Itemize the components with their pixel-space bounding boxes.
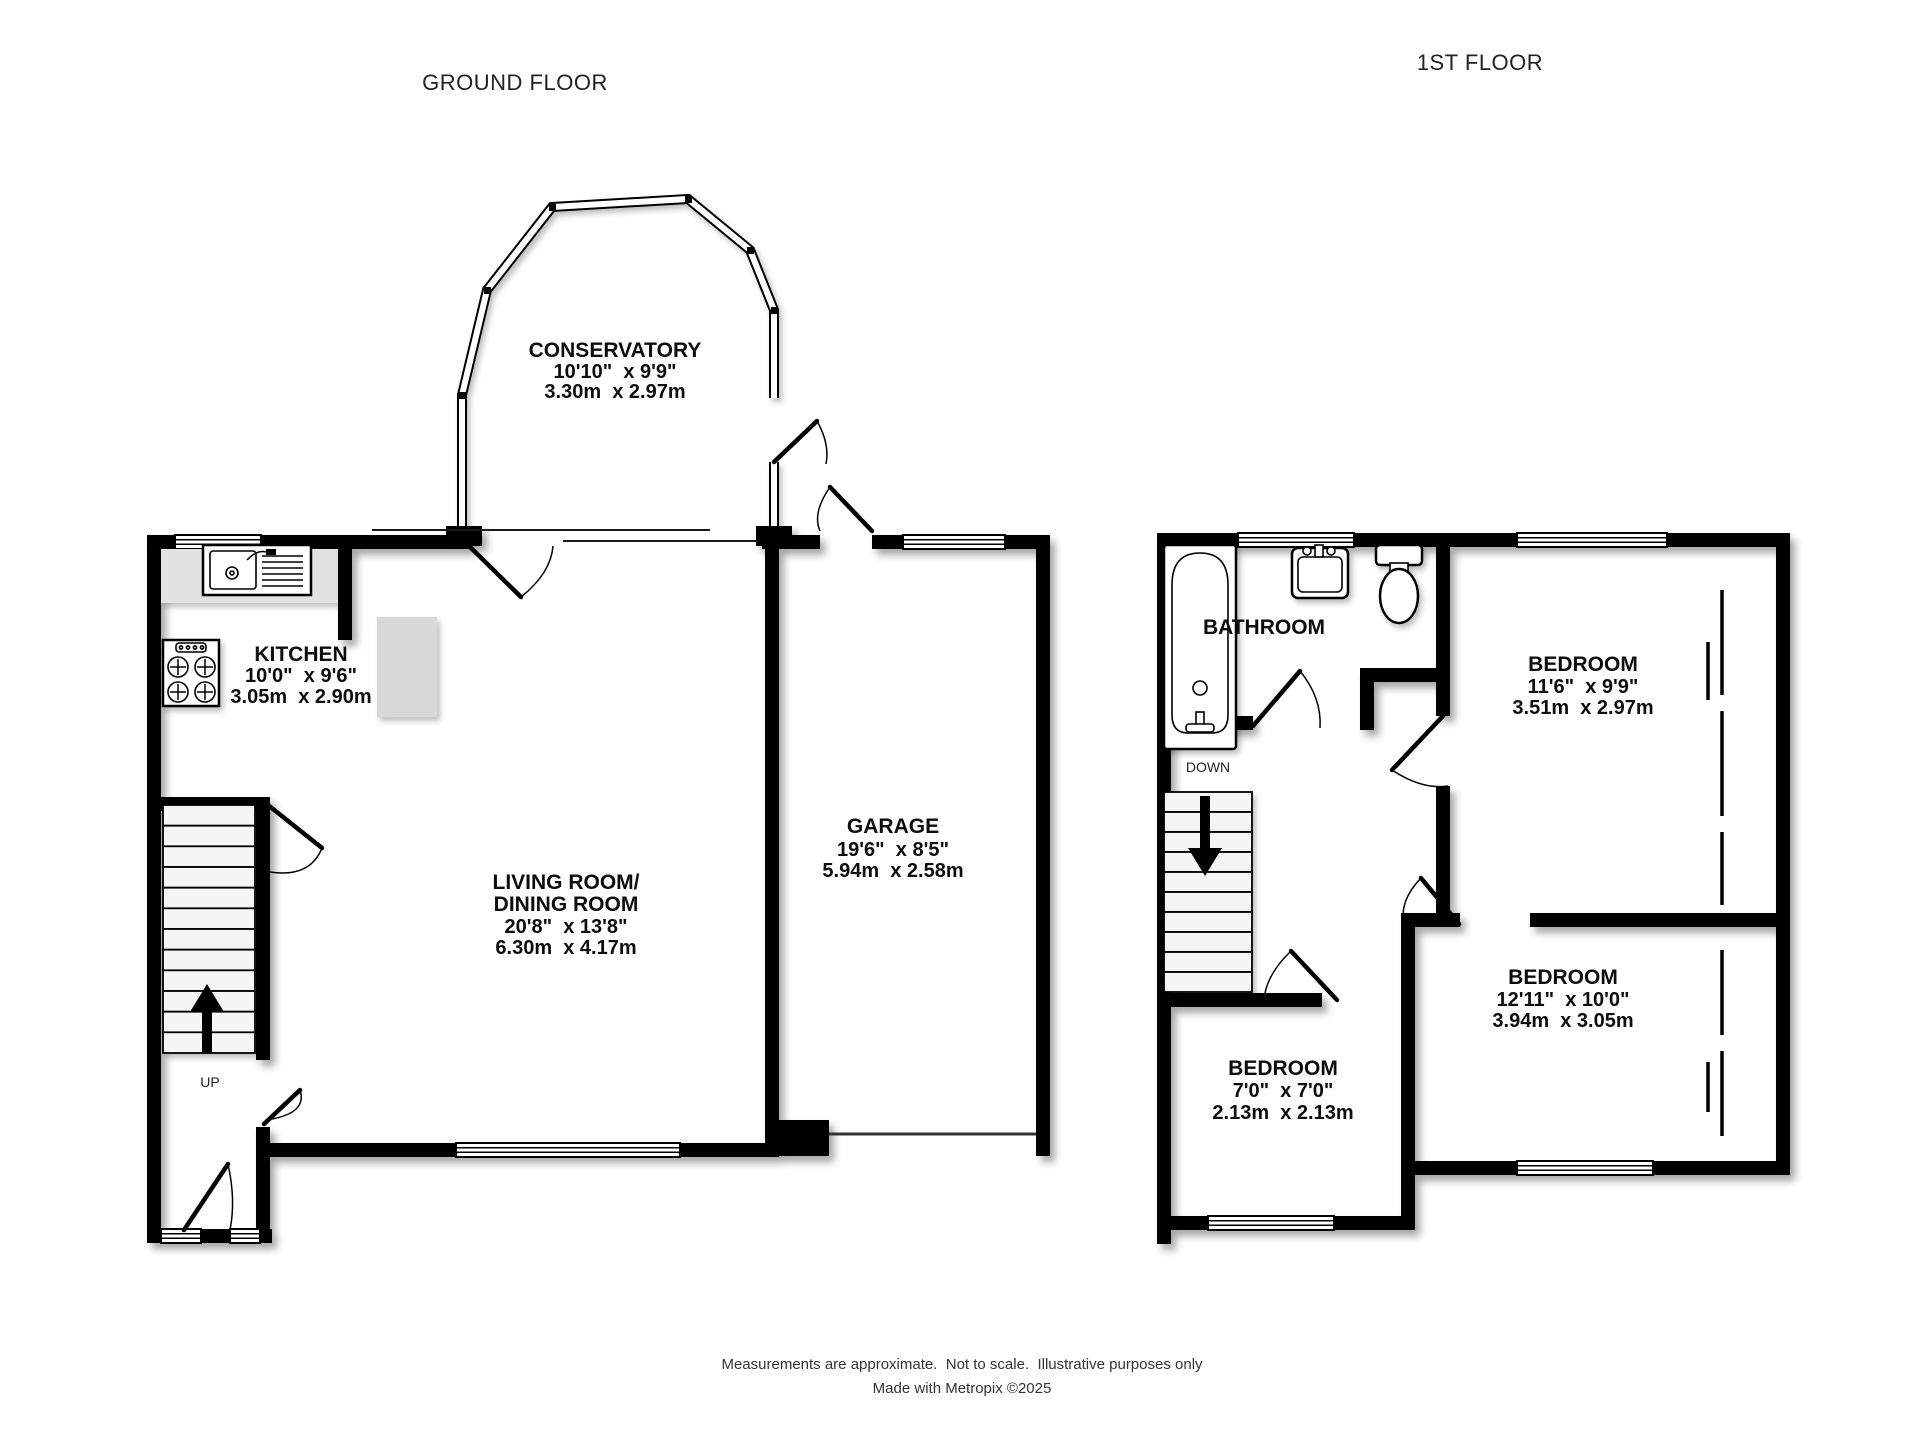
kitchen-imperial: 10'0" x 9'6" [245, 665, 357, 687]
stairs-down [1164, 792, 1252, 992]
hall-living-door-top [268, 805, 322, 873]
bedroom2-metric: 3.94m x 3.05m [1492, 1010, 1633, 1032]
living-room-label-2: DINING ROOM [494, 893, 639, 916]
ground-floor-plan: UP CONSERVATORY 10'10" x 9'9" 3.30m x 2.… [147, 196, 1050, 1243]
bedroom3-window [1208, 1216, 1334, 1230]
garage-imperial: 19'6" x 8'5" [837, 839, 949, 861]
stairs-up [163, 805, 255, 1053]
bathroom-label: BATHROOM [1203, 616, 1325, 639]
living-room-metric: 6.30m x 4.17m [495, 937, 636, 959]
bedroom3-imperial: 7'0" x 7'0" [1233, 1080, 1334, 1102]
bedroom1-window [1517, 533, 1667, 547]
garage-label: GARAGE [847, 815, 939, 838]
living-room-label-1: LIVING ROOM/ [493, 871, 640, 894]
garage-metric: 5.94m x 2.58m [822, 860, 963, 882]
living-room-imperial: 20'8" x 13'8" [504, 916, 627, 938]
bedroom3-label: BEDROOM [1228, 1057, 1338, 1080]
garage-window [903, 535, 1005, 549]
bedroom2-window [1517, 1161, 1653, 1175]
conservatory-label: CONSERVATORY [529, 339, 702, 362]
first-floor-title: 1ST FLOOR [1417, 50, 1543, 75]
first-floor-plan: DOWN BATHROOM BEDROOM 11'6" x 9'9" 3.51m… [1157, 533, 1790, 1244]
hall-window-left [161, 1229, 201, 1243]
kitchen-appliance-block [377, 617, 437, 717]
disclaimer-line: Measurements are approximate. Not to sca… [721, 1356, 1203, 1373]
kitchen-conservatory-door [468, 545, 553, 597]
conservatory-exterior-door [774, 421, 827, 464]
stove-icon [163, 640, 219, 706]
wardrobe-lines [1708, 590, 1722, 1150]
ground-floor-title: GROUND FLOOR [422, 70, 608, 95]
up-label: UP [200, 1074, 219, 1090]
bedroom2-label: BEDROOM [1508, 966, 1618, 989]
first-room-labels: BATHROOM BEDROOM 11'6" x 9'9" 3.51m x 2.… [1203, 616, 1654, 1124]
conservatory-imperial: 10'10" x 9'9" [553, 361, 676, 383]
bathroom-fixtures [1164, 545, 1422, 749]
back-door [818, 487, 872, 531]
down-label: DOWN [1186, 759, 1230, 775]
bedroom1-imperial: 11'6" x 9'9" [1528, 676, 1639, 698]
floorplan-canvas: GROUND FLOOR 1ST FLOOR [0, 0, 1920, 1453]
bedroom1-door [1392, 716, 1448, 787]
bedroom1-label: BEDROOM [1528, 653, 1638, 676]
conservatory-metric: 3.30m x 2.97m [544, 381, 685, 403]
footer: Measurements are approximate. Not to sca… [721, 1356, 1203, 1397]
sink-basin-icon [1292, 545, 1348, 598]
sink-icon [203, 545, 311, 595]
bathtub-icon [1164, 545, 1236, 749]
front-door [184, 1164, 233, 1230]
toilet-icon [1376, 545, 1422, 623]
credit-line: Made with Metropix ©2025 [873, 1380, 1052, 1397]
bedroom3-door [1264, 951, 1337, 1000]
living-room-window [456, 1143, 680, 1157]
kitchen-label: KITCHEN [254, 643, 347, 666]
bathroom-door [1253, 671, 1320, 728]
bedroom3-metric: 2.13m x 2.13m [1212, 1102, 1353, 1124]
bathroom-window [1238, 533, 1354, 547]
hall-living-door-bottom [264, 1090, 301, 1124]
hall-window-right [230, 1229, 260, 1243]
bedroom1-metric: 3.51m x 2.97m [1512, 697, 1653, 719]
kitchen-metric: 3.05m x 2.90m [230, 686, 371, 708]
ground-room-labels: CONSERVATORY 10'10" x 9'9" 3.30m x 2.97m… [230, 339, 963, 959]
bedroom2-imperial: 12'11" x 10'0" [1496, 989, 1629, 1011]
first-doors [1253, 671, 1459, 1000]
